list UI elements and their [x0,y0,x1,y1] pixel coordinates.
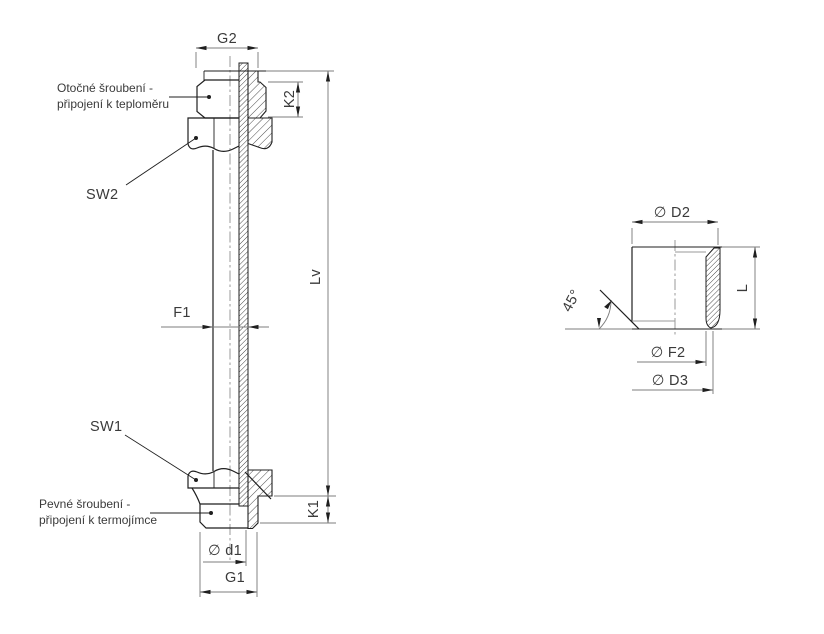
annotation-fixed: Pevné šroubení - připojení k termojímce [39,497,213,527]
dim-angle-label: 45° [559,287,584,315]
dim-k1: K1 [260,496,336,523]
dim-lv-label: Lv [308,269,324,285]
dim-f2: ∅ F2 [637,331,706,366]
hex-sw2-section [248,118,272,149]
annotation-swivel-line1: Otočné šroubení - [57,81,153,95]
swivel-nut-section [248,71,266,118]
dim-k2: K2 [268,82,303,117]
annotation-fixed-line1: Pevné šroubení - [39,497,130,511]
dim-k1-label: K1 [306,500,322,518]
dim-lv: Lv [308,71,330,496]
stem-tube-section [239,63,248,506]
label-sw1: SW1 [90,419,198,482]
drawing-canvas: G2 K2 F1 Lv [0,0,824,634]
annotation-swivel: Otočné šroubení - připojení k teploměru [57,81,211,111]
label-sw2: SW2 [86,136,198,203]
main-view: G2 K2 F1 Lv [39,31,336,597]
olive-wall-section [706,248,720,328]
dim-k2-label: K2 [282,90,298,108]
dim-l-label: L [735,284,751,292]
dim-g2: G2 [196,31,258,68]
dim-f2-label: ∅ F2 [651,345,686,361]
technical-drawing: G2 K2 F1 Lv [0,0,824,634]
detail-view: ∅ D2 L 45° ∅ F2 ∅ D3 [559,205,760,394]
dim-g1: G1 [200,532,257,597]
hex-sw2-outline [188,118,239,151]
dim-d1: ∅ d1 [203,530,246,566]
dim-g1-label: G1 [225,570,245,586]
dim-f1-label: F1 [173,305,191,321]
sw2-label: SW2 [86,187,118,203]
dim-d2: ∅ D2 [632,205,718,245]
annotation-swivel-line2: připojení k teploměru [57,97,169,111]
sw1-label: SW1 [90,419,122,435]
swivel-nut-outline [197,80,239,118]
dim-d1-label: ∅ d1 [208,543,242,559]
annotation-fixed-line2: připojení k termojímce [39,513,157,527]
chamfer-line [600,290,639,329]
dim-l: L [735,247,757,329]
dim-d3-label: ∅ D3 [652,373,688,389]
dim-f1: F1 [161,305,269,329]
dim-d2-label: ∅ D2 [654,205,690,221]
dim-g2-label: G2 [217,31,237,47]
